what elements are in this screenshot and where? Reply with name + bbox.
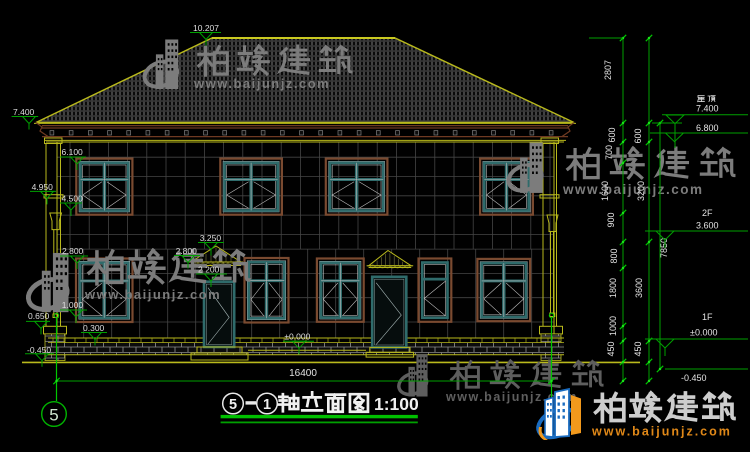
svg-text:www.baijunjz.com: www.baijunjz.com: [84, 287, 221, 302]
svg-text:3600: 3600: [634, 278, 644, 298]
svg-text:4.950: 4.950: [32, 182, 54, 192]
svg-text:3200: 3200: [636, 181, 646, 201]
svg-text:0.650: 0.650: [28, 311, 50, 321]
svg-text:10.207: 10.207: [193, 23, 219, 33]
svg-text:0.300: 0.300: [83, 323, 105, 333]
svg-text:5: 5: [49, 406, 58, 425]
svg-text:3.600: 3.600: [696, 221, 719, 231]
svg-text:700: 700: [604, 145, 614, 160]
svg-text:6.100: 6.100: [62, 147, 84, 157]
svg-text:600: 600: [607, 127, 617, 142]
svg-text:2.800: 2.800: [176, 246, 198, 256]
svg-text:7850: 7850: [659, 238, 669, 258]
svg-text:±0.000: ±0.000: [284, 332, 310, 342]
svg-text:2.200: 2.200: [198, 265, 220, 275]
svg-text:2807: 2807: [603, 60, 613, 80]
svg-text:7.400: 7.400: [696, 104, 719, 114]
svg-text:450: 450: [633, 341, 643, 356]
svg-text:www.baijunjz.com: www.baijunjz.com: [193, 76, 330, 91]
svg-text:4.500: 4.500: [62, 194, 84, 204]
svg-text:16400: 16400: [289, 368, 317, 379]
svg-text:±0.000: ±0.000: [690, 328, 717, 338]
svg-text:3.250: 3.250: [200, 233, 222, 243]
svg-text:2.800: 2.800: [62, 246, 84, 256]
svg-text:-0.450: -0.450: [681, 373, 707, 383]
svg-text:1.000: 1.000: [62, 300, 84, 310]
svg-text:www.baijunjz.com: www.baijunjz.com: [591, 425, 732, 439]
svg-text:1F: 1F: [702, 312, 713, 322]
svg-text:7.400: 7.400: [13, 107, 35, 117]
svg-text:800: 800: [609, 248, 619, 263]
svg-text:600: 600: [633, 128, 643, 143]
svg-text:1600: 1600: [600, 181, 610, 201]
svg-text:1:100: 1:100: [374, 394, 419, 414]
svg-text:450: 450: [606, 341, 616, 356]
svg-text:900: 900: [606, 212, 616, 227]
svg-text:1000: 1000: [608, 316, 618, 336]
svg-text:6.800: 6.800: [696, 123, 719, 133]
svg-text:5: 5: [229, 397, 237, 413]
svg-text:www.baijunjz.com: www.baijunjz.com: [562, 182, 704, 197]
svg-text:1: 1: [263, 397, 271, 413]
svg-text:1800: 1800: [608, 278, 618, 298]
svg-text:2F: 2F: [702, 208, 713, 218]
